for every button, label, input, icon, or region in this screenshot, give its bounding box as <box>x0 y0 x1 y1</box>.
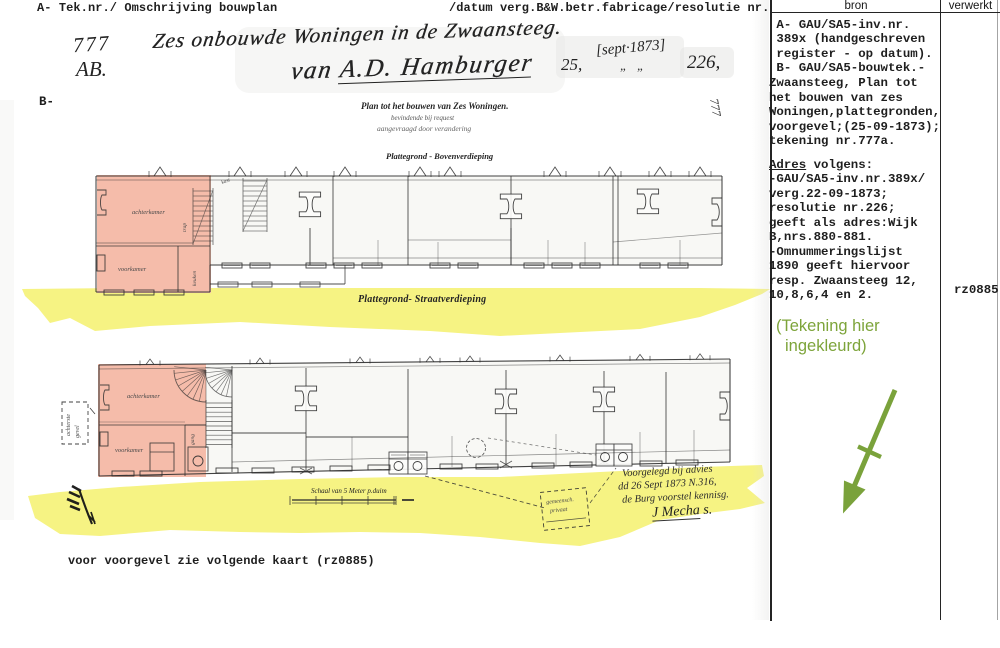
svg-text:achterkamer: achterkamer <box>127 393 160 400</box>
svg-text:gevel: gevel <box>75 425 81 438</box>
svg-text:voorkamer: voorkamer <box>118 266 147 273</box>
svg-text:voorkamer: voorkamer <box>115 447 144 454</box>
svg-text:achterkamer: achterkamer <box>132 209 165 216</box>
svg-text:achterste: achterste <box>66 414 72 436</box>
svg-text:trap: trap <box>182 223 188 232</box>
svg-text:gang: gang <box>190 434 196 445</box>
svg-text:keuken: keuken <box>192 270 198 286</box>
